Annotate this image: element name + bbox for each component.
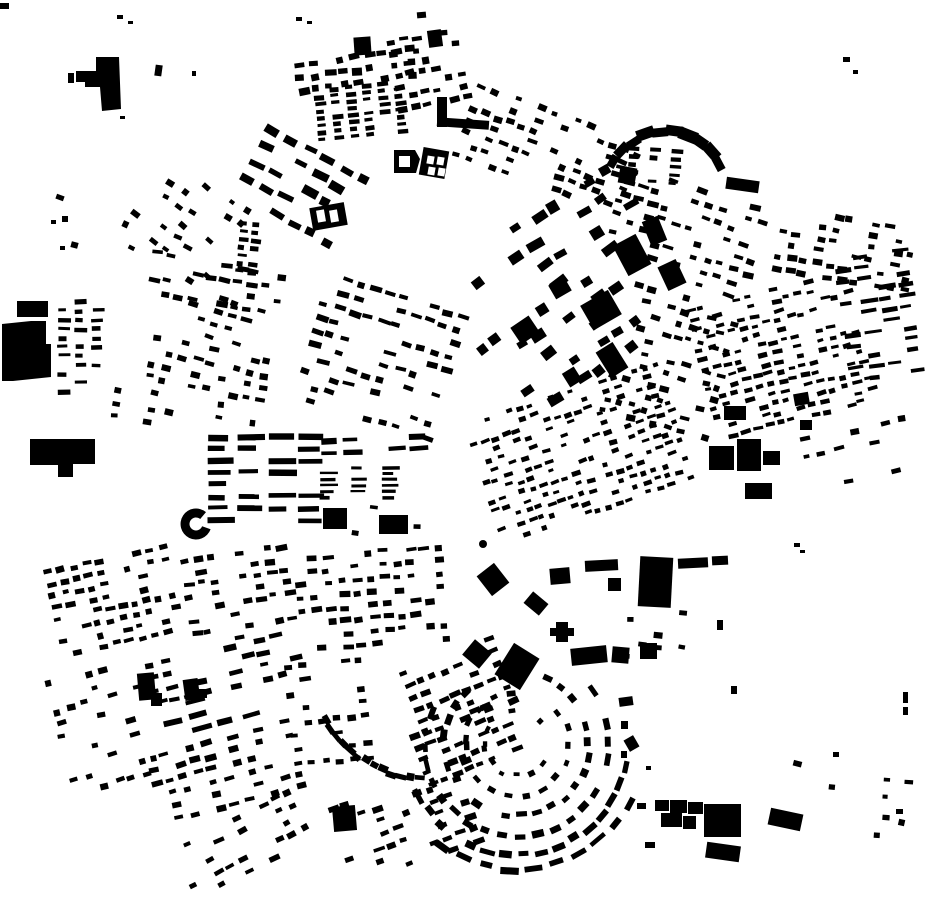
- building: [117, 15, 123, 19]
- building: [550, 628, 574, 636]
- building: [712, 556, 728, 566]
- building: [621, 751, 627, 758]
- building: [51, 220, 56, 224]
- big-block: [745, 483, 772, 499]
- building-cluster: [170, 788, 315, 901]
- building-cluster: [144, 628, 307, 709]
- building: [128, 21, 133, 24]
- courtyard: [427, 166, 435, 175]
- building-cluster: [783, 759, 914, 843]
- building-cluster: [290, 271, 472, 442]
- large-block: [638, 556, 674, 608]
- e-shaped-building: [309, 202, 347, 231]
- warehouse: [645, 842, 655, 848]
- building: [896, 809, 903, 814]
- big-block: [737, 439, 761, 471]
- building: [833, 752, 839, 757]
- building: [585, 559, 619, 572]
- dark-terrace-block: [323, 508, 347, 529]
- building: [417, 12, 426, 19]
- building: [549, 567, 570, 585]
- building-cluster: [320, 466, 400, 500]
- big-block: [793, 392, 810, 406]
- building: [800, 550, 805, 553]
- c-shaped-building: [181, 508, 211, 539]
- building: [307, 21, 312, 24]
- warehouse-large: [704, 804, 741, 837]
- w-large-building: [2, 321, 51, 381]
- town-center-block: [613, 234, 652, 276]
- building-cluster: [322, 714, 425, 781]
- large-rotated-slab: [494, 643, 539, 690]
- building: [608, 578, 621, 591]
- building: [623, 735, 639, 752]
- building: [621, 721, 628, 729]
- town-center-block: [657, 259, 686, 291]
- building: [618, 166, 638, 186]
- courtyard: [436, 156, 444, 165]
- w-slab-building: [30, 439, 95, 477]
- building: [524, 591, 549, 615]
- building: [570, 645, 608, 666]
- building-cluster: [110, 384, 261, 441]
- warehouse: [705, 842, 741, 863]
- warehouse: [688, 802, 703, 814]
- building: [640, 643, 657, 659]
- warehouse: [768, 808, 804, 831]
- building-cluster: [229, 123, 370, 250]
- building: [843, 57, 850, 62]
- building: [717, 620, 723, 630]
- building: [646, 766, 651, 770]
- building-cluster: [112, 155, 253, 294]
- building: [68, 73, 74, 83]
- building: [853, 70, 858, 74]
- dark-terrace-block: [379, 515, 408, 534]
- building: [192, 71, 196, 76]
- building-cluster: [145, 249, 288, 319]
- building: [427, 29, 443, 48]
- town-center-block: [562, 367, 582, 388]
- building: [725, 177, 759, 193]
- building-cluster: [283, 656, 375, 770]
- building: [678, 557, 708, 569]
- building-cluster: [684, 269, 881, 443]
- building-cluster: [412, 761, 629, 859]
- courtyard: [426, 155, 434, 164]
- bl-dark-building: [151, 693, 162, 706]
- courtyard: [399, 156, 410, 167]
- building: [60, 246, 65, 250]
- courtyard: [437, 167, 445, 176]
- bc-dark-building: [332, 805, 357, 832]
- building: [55, 194, 64, 201]
- building: [611, 646, 629, 663]
- building-cluster: [144, 334, 274, 406]
- building-cluster: [178, 542, 302, 647]
- warehouse: [637, 803, 646, 809]
- building: [70, 241, 78, 249]
- building-cluster: [293, 543, 452, 655]
- building-cluster: [57, 299, 105, 395]
- building: [903, 707, 908, 715]
- building-cluster: [799, 415, 916, 492]
- building: [62, 216, 68, 222]
- building: [477, 563, 510, 596]
- big-block: [800, 420, 812, 430]
- big-block: [709, 446, 734, 470]
- big-block: [724, 406, 746, 420]
- warehouse: [683, 816, 696, 829]
- building-cluster: [320, 433, 428, 457]
- building-cluster: [144, 717, 308, 827]
- figure-ground-map: [0, 0, 930, 924]
- building: [462, 639, 492, 668]
- warehouse: [661, 813, 682, 827]
- building: [353, 36, 371, 55]
- town-center-block: [580, 290, 622, 330]
- building: [618, 696, 633, 707]
- building: [154, 65, 162, 77]
- building: [296, 17, 302, 21]
- w-large-building: [17, 301, 48, 317]
- building: [731, 686, 737, 694]
- building-cluster: [42, 543, 186, 659]
- round-building: [479, 540, 487, 548]
- big-block: [763, 451, 780, 465]
- nw-large-building: [76, 57, 121, 111]
- building: [794, 543, 800, 547]
- building: [120, 116, 125, 119]
- town-center-block: [548, 277, 572, 300]
- l-shaped-wall: [437, 117, 490, 130]
- building-cluster: [207, 433, 324, 523]
- warehouse: [655, 800, 669, 811]
- warehouse: [670, 800, 687, 813]
- map-canvas: [0, 0, 930, 924]
- building: [903, 692, 908, 703]
- corner-speck: [0, 3, 9, 9]
- bl-dark-building: [196, 689, 207, 698]
